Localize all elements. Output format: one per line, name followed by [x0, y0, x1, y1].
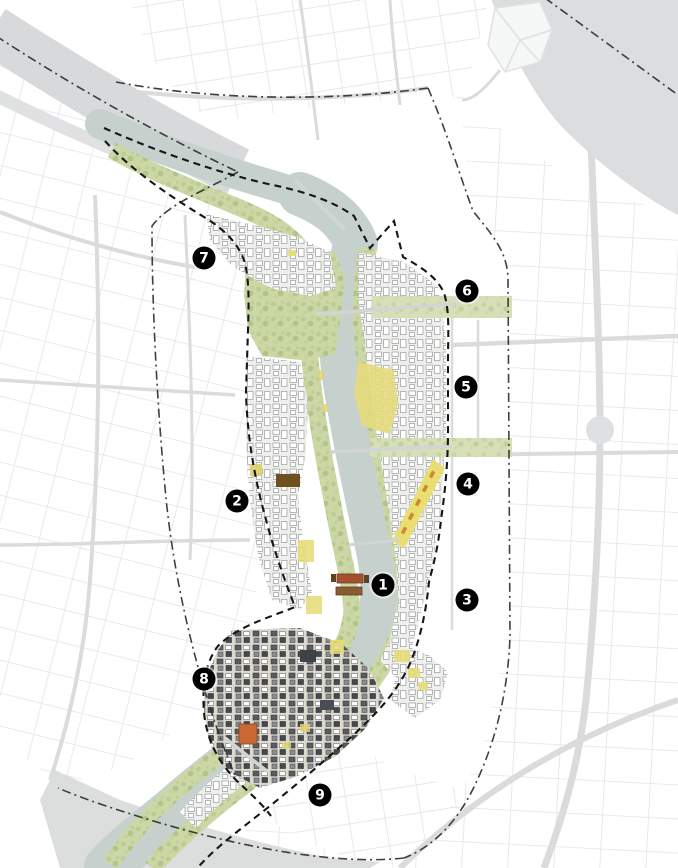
map-marker-5: 5 — [455, 376, 478, 399]
map-marker-1: 1 — [372, 574, 395, 597]
map-marker-9: 9 — [309, 784, 332, 807]
marker-1-label: 1 — [378, 578, 388, 592]
orange-landmark-building — [239, 724, 257, 744]
marker-2-label: 2 — [232, 494, 242, 508]
marker-8-label: 8 — [199, 672, 209, 686]
map-marker-6: 6 — [456, 280, 479, 303]
marker-3-label: 3 — [462, 593, 472, 607]
marker-5-label: 5 — [461, 380, 471, 394]
marker-4-label: 4 — [463, 477, 473, 491]
planning-map: 1 2 3 4 5 6 7 8 9 — [0, 0, 678, 868]
marker-9-label: 9 — [315, 788, 325, 802]
marker-6-label: 6 — [462, 284, 472, 298]
map-marker-2: 2 — [226, 490, 249, 513]
map-canvas — [0, 0, 678, 868]
highway-interchange — [586, 416, 614, 444]
map-marker-3: 3 — [456, 589, 479, 612]
map-marker-4: 4 — [457, 473, 480, 496]
marker-7-label: 7 — [199, 251, 209, 265]
map-marker-7: 7 — [193, 247, 216, 270]
map-marker-8: 8 — [193, 668, 216, 691]
dark-brown-building — [276, 474, 300, 487]
